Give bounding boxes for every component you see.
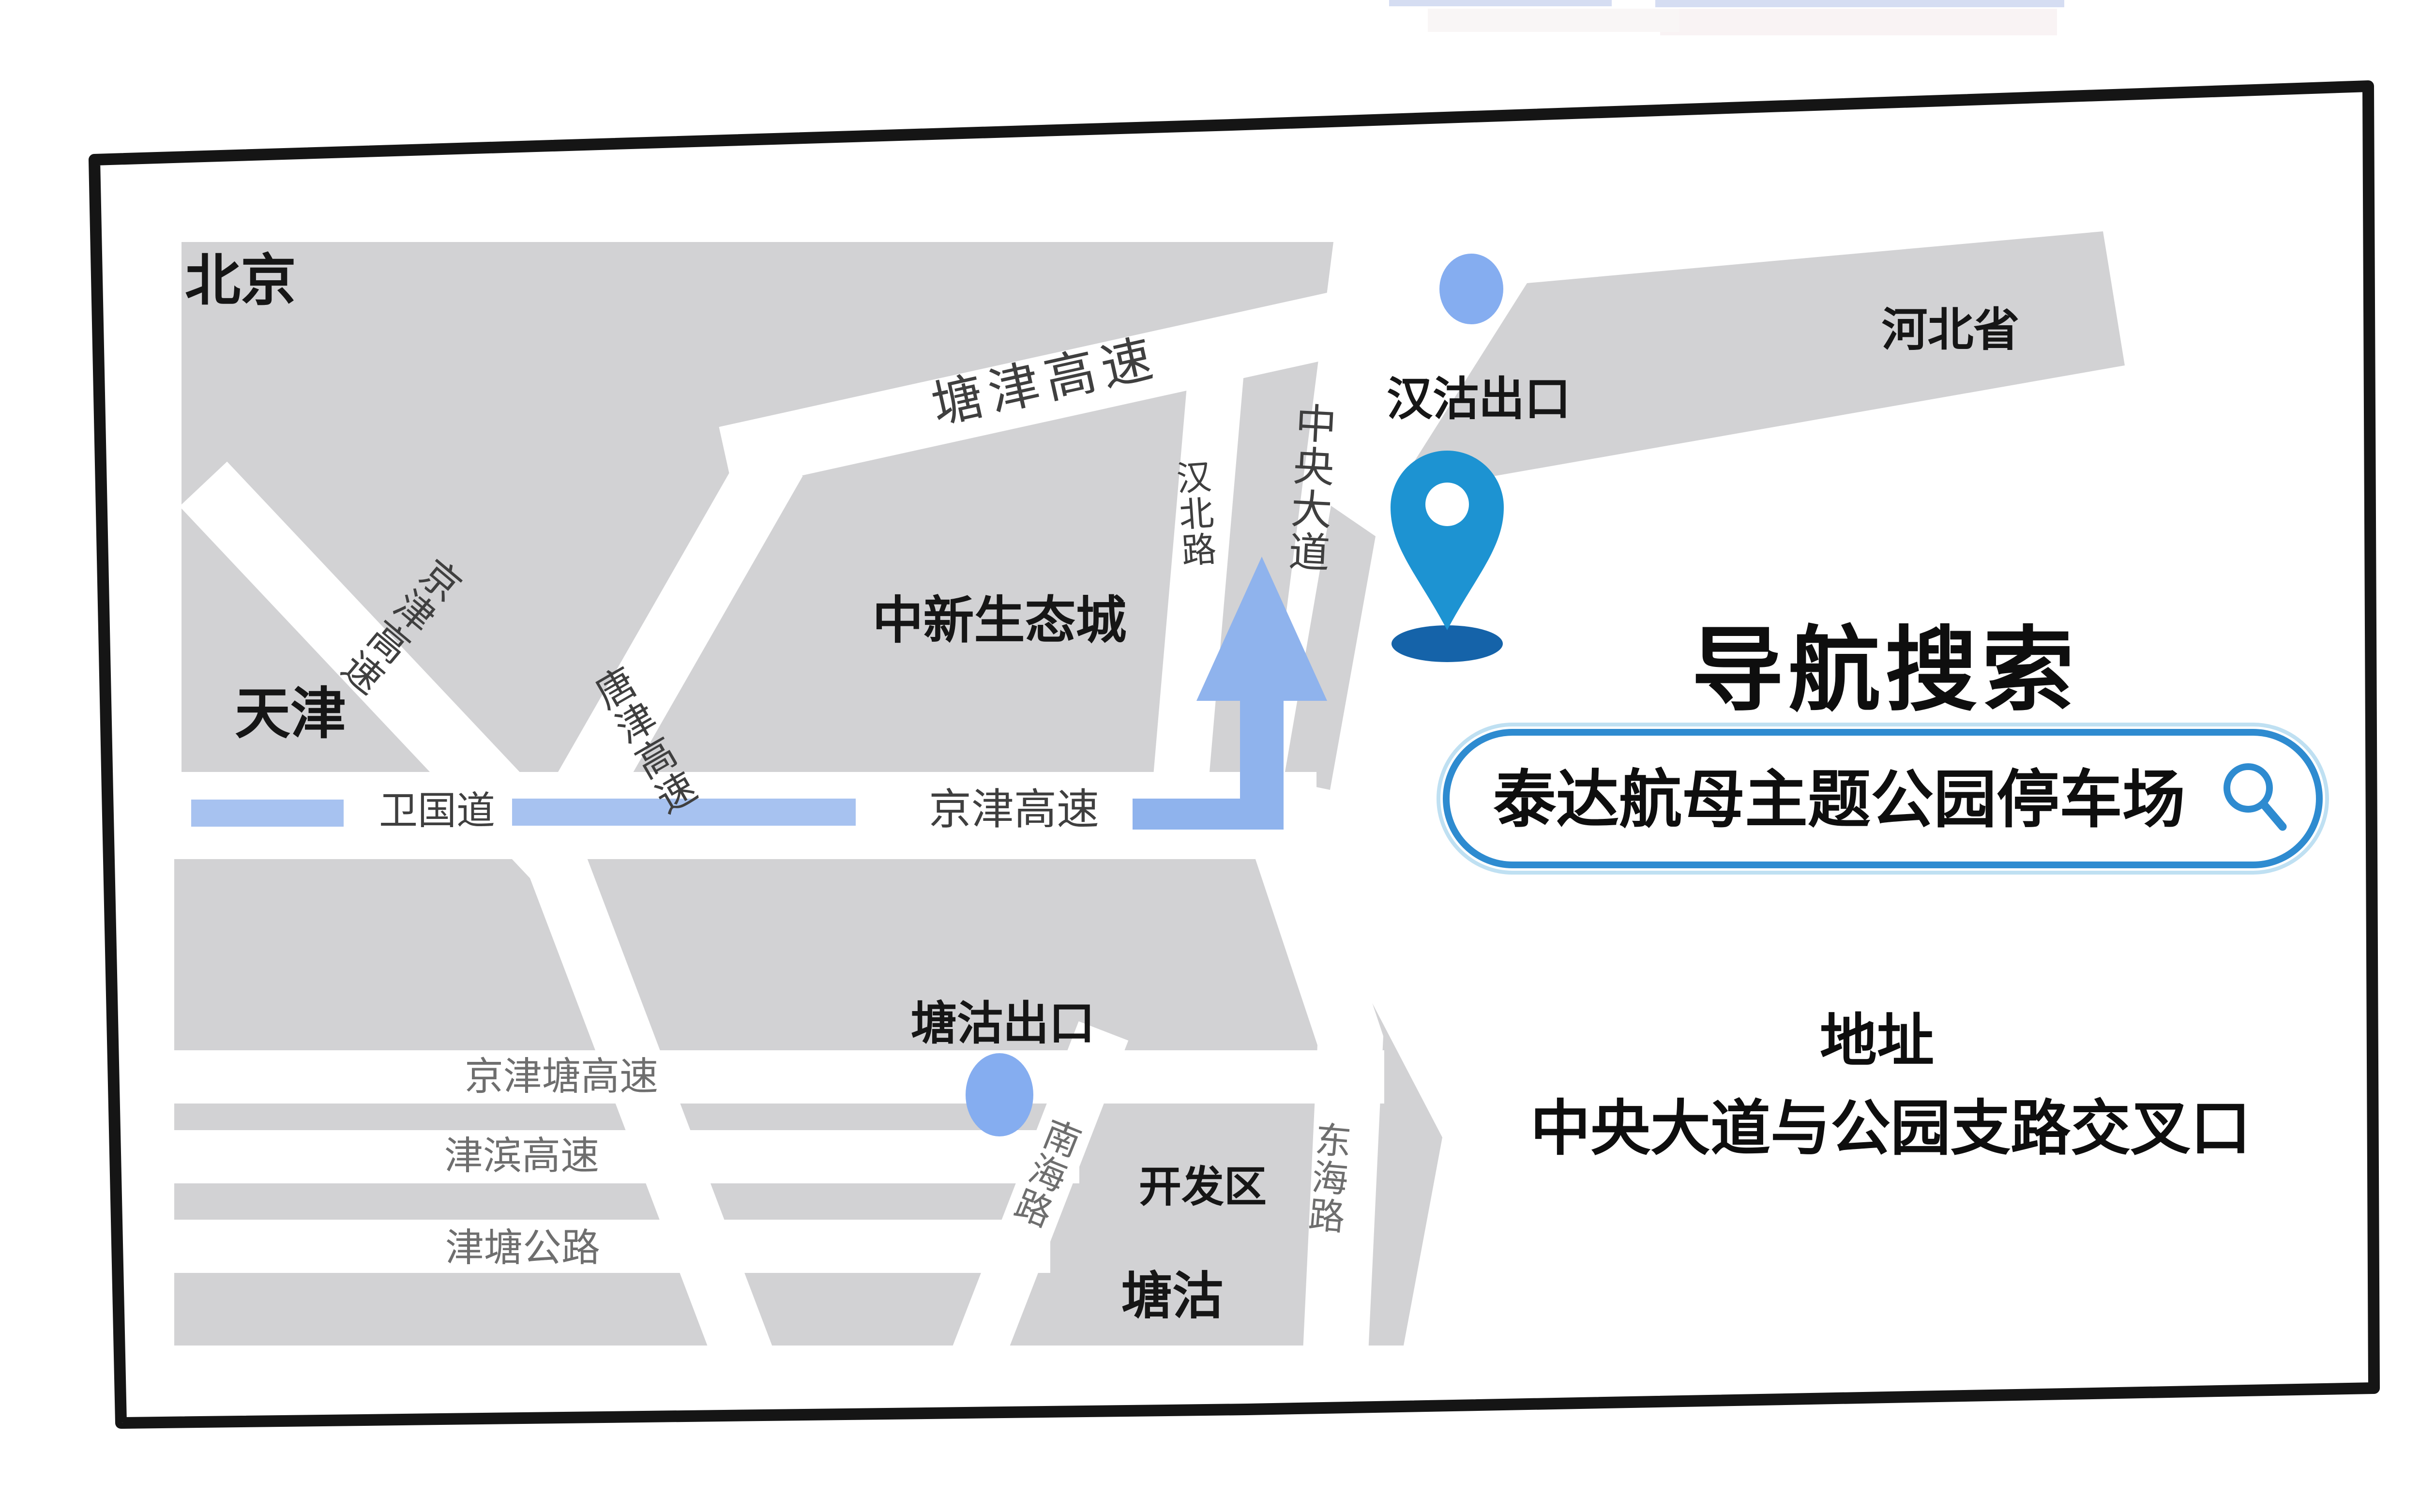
road-label-jingjintang: 京津塘高速 [465, 1054, 658, 1099]
route-dash-1 [191, 800, 344, 827]
region-label-hebei: 河北省 [1881, 303, 2019, 357]
region-label-development-zone: 开发区 [1139, 1162, 1267, 1212]
road-label-jintang: 津塘公路 [445, 1225, 600, 1270]
top-edge-artifact [1389, 0, 2064, 35]
region-label-zhongxin-eco-city: 中新生态城 [872, 591, 1126, 650]
location-pin-icon [1391, 451, 1504, 662]
navigation-map-graphic: 北京 天津 中新生态城 河北省 汉沽出口 塘沽出口 开发区 塘沽 卫国道 京津高… [0, 0, 2420, 1512]
exit-label-hangu: 汉沽出口 [1387, 373, 1571, 426]
road-label-jingjin-mid: 京津高速 [929, 785, 1099, 834]
road-label-jinbin: 津滨高速 [444, 1134, 599, 1179]
address-text: 中央大道与公园支路交叉口 [1530, 1094, 2251, 1164]
address-heading: 地址 [1820, 1007, 1934, 1074]
search-box[interactable]: 泰达航母主题公园停车场 [1438, 725, 2327, 873]
exit-dot-hangu [1439, 254, 1503, 324]
map-block-hebei [1394, 231, 2125, 494]
exit-dot-tanggu [966, 1053, 1033, 1136]
exit-label-tanggu: 塘沽出口 [911, 997, 1095, 1050]
road-label-weiguo-avenue: 卫国道 [379, 788, 495, 833]
page-title: 导航搜索 [1692, 617, 2079, 724]
region-label-beijing: 北京 [185, 248, 296, 313]
region-label-tanggu: 塘沽 [1121, 1267, 1223, 1326]
region-label-tianjin: 天津 [235, 681, 346, 746]
search-input-value[interactable]: 泰达航母主题公园停车场 [1493, 763, 2185, 836]
